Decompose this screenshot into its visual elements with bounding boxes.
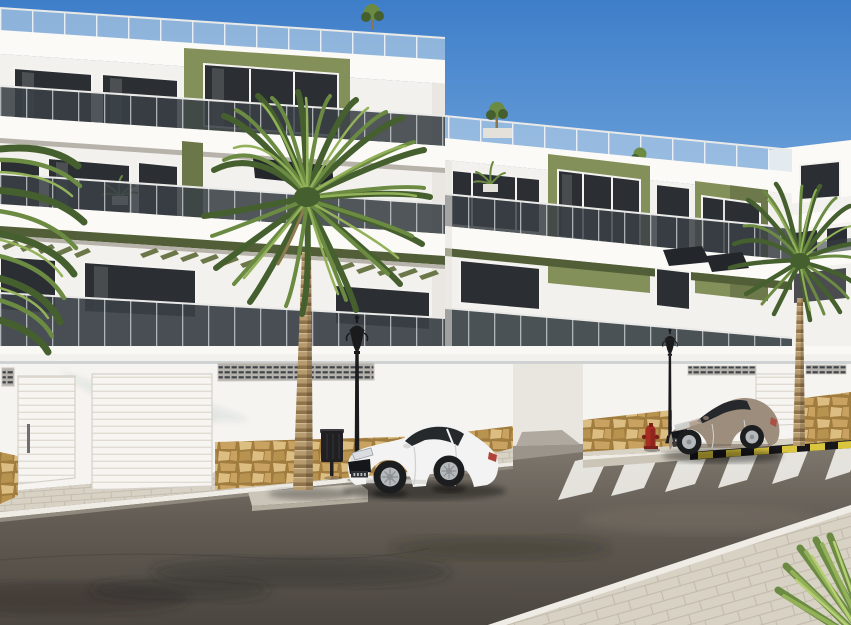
garage-door-wide[interactable] bbox=[92, 374, 212, 490]
window bbox=[460, 260, 540, 310]
vent-grille bbox=[806, 365, 846, 374]
door-handle[interactable] bbox=[27, 424, 30, 453]
garage-door-small[interactable] bbox=[18, 376, 75, 484]
vent-grille bbox=[2, 368, 14, 386]
stone-base bbox=[804, 392, 851, 444]
scene-canvas: Sunny photorealistic render of a modern … bbox=[0, 0, 851, 625]
stone-base bbox=[0, 452, 18, 504]
window bbox=[656, 268, 690, 310]
vent-grille bbox=[688, 366, 756, 375]
side-mirror bbox=[703, 416, 709, 420]
vent-grille bbox=[218, 363, 374, 381]
wall-molding bbox=[0, 346, 851, 354]
architectural-render-scene: Sunny photorealistic render of a modern … bbox=[0, 0, 851, 625]
side-mirror bbox=[403, 444, 411, 449]
